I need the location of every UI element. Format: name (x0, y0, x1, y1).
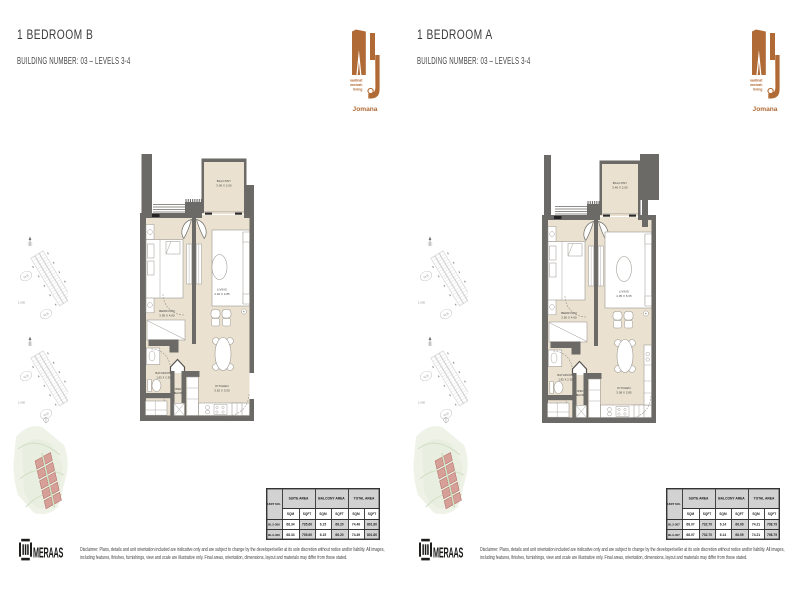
svg-text:SQFT: SQFT (303, 512, 312, 516)
svg-text:801.80: 801.80 (367, 533, 377, 537)
svg-text:1:500: 1:500 (418, 401, 425, 405)
svg-text:MJ5: MJ5 (423, 273, 430, 279)
svg-text:3.95 X 4.60: 3.95 X 4.60 (159, 314, 175, 318)
svg-text:66.20: 66.20 (335, 533, 343, 537)
svg-text:OPEN: OPEN (175, 389, 182, 391)
svg-text:68.34: 68.34 (286, 523, 294, 527)
svg-text:BL3-306: BL3-306 (268, 523, 280, 527)
svg-text:68.07: 68.07 (686, 523, 694, 527)
svg-text:1:500: 1:500 (418, 301, 425, 305)
svg-text:68.07: 68.07 (686, 533, 694, 537)
svg-text:BL3-307: BL3-307 (668, 523, 680, 527)
svg-text:732.70: 732.70 (702, 533, 712, 537)
svg-text:6.14: 6.14 (720, 523, 727, 527)
svg-text:Jomana: Jomana (753, 106, 778, 113)
svg-text:jumeirah: jumeirah (350, 83, 363, 87)
svg-text:LIVING: LIVING (619, 290, 629, 294)
svg-text:3.50 X 4.60: 3.50 X 4.60 (561, 316, 577, 320)
svg-text:OPEN: OPEN (577, 391, 584, 393)
svg-text:6.14: 6.14 (720, 533, 727, 537)
svg-text:3.40 X 2.00: 3.40 X 2.00 (612, 186, 628, 190)
svg-text:UNIT NO.: UNIT NO. (667, 502, 681, 506)
svg-text:SQFT: SQFT (735, 512, 744, 516)
svg-text:BL3-406: BL3-406 (268, 533, 280, 537)
svg-text:74.49: 74.49 (352, 523, 360, 527)
svg-text:BATHROOM: BATHROOM (156, 371, 172, 375)
svg-text:735.60: 735.60 (302, 533, 312, 537)
svg-text:living: living (353, 88, 362, 92)
svg-text:SQFT: SQFT (768, 512, 777, 516)
svg-text:Jomana: Jomana (353, 106, 378, 113)
svg-text:living: living (753, 88, 762, 92)
svg-text:732.70: 732.70 (702, 523, 712, 527)
svg-text:66.09: 66.09 (735, 523, 743, 527)
svg-text:735.60: 735.60 (302, 523, 312, 527)
svg-text:MERAAS: MERAAS (33, 546, 64, 561)
svg-text:SUITE AREA: SUITE AREA (689, 497, 709, 501)
svg-text:SQFT: SQFT (335, 512, 344, 516)
svg-text:KITCHEN: KITCHEN (215, 384, 228, 388)
svg-text:66.09: 66.09 (735, 533, 743, 537)
svg-text:BALCONY AREA: BALCONY AREA (718, 497, 745, 501)
svg-text:MJ5: MJ5 (23, 273, 30, 279)
svg-text:MJ5: MJ5 (43, 311, 50, 317)
svg-text:SQM: SQM (752, 512, 760, 516)
svg-text:SQM: SQM (352, 512, 360, 516)
svg-text:1.95 X 2.35: 1.95 X 2.35 (156, 376, 171, 380)
svg-text:1.95 X 2.35: 1.95 X 2.35 (558, 378, 573, 382)
svg-text:UNIT NO.: UNIT NO. (267, 502, 281, 506)
svg-text:jumeirah: jumeirah (750, 83, 763, 87)
svg-text:BELOW: BELOW (174, 393, 183, 395)
svg-text:801.80: 801.80 (367, 523, 377, 527)
svg-text:BALCONY AREA: BALCONY AREA (318, 497, 345, 501)
svg-text:BALCONY: BALCONY (613, 181, 627, 185)
svg-text:madinat: madinat (750, 79, 763, 83)
svg-text:1:500: 1:500 (18, 401, 25, 405)
svg-text:6.15: 6.15 (320, 533, 327, 537)
svg-text:SQFT: SQFT (368, 512, 377, 516)
svg-text:BELOW: BELOW (576, 395, 585, 397)
svg-text:LIVING: LIVING (217, 288, 227, 292)
svg-text:SQM: SQM (719, 512, 727, 516)
svg-text:SQM: SQM (319, 512, 327, 516)
svg-text:6.15: 6.15 (320, 523, 327, 527)
svg-text:TOTAL AREA: TOTAL AREA (354, 497, 375, 501)
svg-text:1:500: 1:500 (18, 301, 25, 305)
svg-text:TOTAL AREA: TOTAL AREA (754, 497, 775, 501)
svg-text:SQM: SQM (687, 512, 695, 516)
svg-text:SQM: SQM (287, 512, 295, 516)
svg-text:3.08 X 2.85: 3.08 X 2.85 (616, 391, 632, 395)
svg-text:74.21: 74.21 (752, 523, 760, 527)
svg-text:798.79: 798.79 (767, 523, 777, 527)
svg-text:madinat: madinat (350, 79, 363, 83)
svg-text:SUITE AREA: SUITE AREA (289, 497, 309, 501)
svg-text:74.49: 74.49 (352, 533, 360, 537)
svg-text:74.21: 74.21 (752, 533, 760, 537)
svg-text:MJ5: MJ5 (423, 373, 430, 379)
svg-text:KITCHEN: KITCHEN (617, 386, 630, 390)
svg-text:MJ5: MJ5 (23, 373, 30, 379)
svg-text:4.40 X 4.85: 4.40 X 4.85 (214, 292, 230, 296)
svg-text:4.05 X 5.05: 4.05 X 5.05 (616, 294, 632, 298)
svg-text:BL3-407: BL3-407 (668, 533, 680, 537)
svg-text:BATHROOM: BATHROOM (558, 373, 574, 377)
svg-text:3.62 X 3.00: 3.62 X 3.00 (214, 389, 230, 393)
svg-text:66.20: 66.20 (335, 523, 343, 527)
svg-text:MJ5: MJ5 (443, 311, 450, 317)
svg-text:BEDROOM: BEDROOM (561, 311, 577, 315)
svg-text:68.34: 68.34 (286, 533, 294, 537)
svg-text:BALCONY: BALCONY (217, 179, 231, 183)
svg-text:SQFT: SQFT (703, 512, 712, 516)
svg-text:3.00 X 2.60: 3.00 X 2.60 (216, 184, 232, 188)
svg-text:MERAAS: MERAAS (433, 546, 464, 561)
svg-text:BEDROOM: BEDROOM (159, 309, 175, 313)
svg-text:798.79: 798.79 (767, 533, 777, 537)
